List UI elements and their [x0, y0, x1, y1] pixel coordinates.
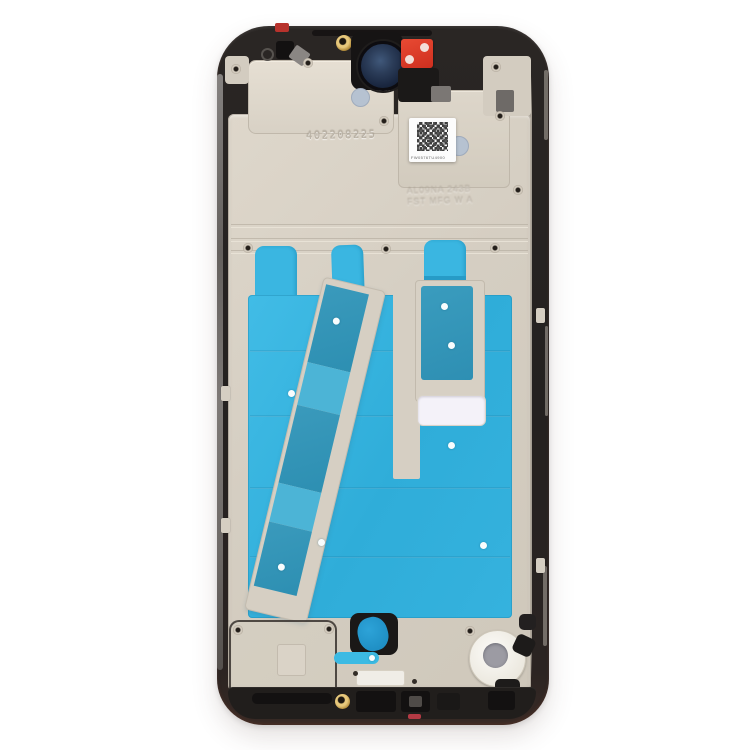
bottom-black-structure: [350, 613, 398, 655]
screw-hole: [465, 626, 475, 636]
cyan-adhesive-strip: [334, 652, 379, 664]
engraved-serial: 402208225: [306, 128, 416, 142]
red-bottom-marker: [408, 714, 421, 719]
screw-hole: [381, 244, 391, 254]
adhesive-hole-dot: [448, 442, 455, 449]
screw-dot: [412, 679, 417, 684]
adhesive-hole-dot: [441, 303, 448, 310]
screw-hole: [513, 185, 523, 195]
frame-left-rim: [217, 74, 223, 670]
adhesive-tab-left: [255, 246, 297, 298]
sticker-dot: [405, 55, 414, 64]
edge-tab: [536, 558, 545, 573]
red-top-marker: [275, 23, 289, 32]
qr-caption: FW0576TU4900: [411, 155, 454, 160]
cutout-inner: [409, 696, 422, 707]
component-cutout: [437, 693, 460, 710]
edge-tab: [221, 386, 230, 401]
gold-screw-bottom: [335, 694, 350, 709]
red-pull-sticker: [401, 39, 433, 68]
stamped-marking: AL09NA 243B FST MFG W A: [407, 182, 520, 208]
qr-code: [417, 122, 448, 151]
bottom-plateau: [277, 644, 306, 676]
microphone-hole: [261, 48, 274, 61]
speaker-cutout: [488, 691, 515, 710]
edge-tab: [221, 518, 230, 533]
screw-dot: [353, 671, 358, 676]
screw-hole: [324, 624, 334, 634]
screw-hole: [243, 243, 253, 253]
qr-label: FW0576TU4900: [409, 118, 456, 162]
screw-hole: [491, 62, 501, 72]
screw-hole: [303, 58, 313, 68]
speaker-mesh-window: [356, 670, 405, 686]
charging-port-cutout: [356, 691, 396, 712]
screw-hole: [379, 116, 389, 126]
adhesive-pad-circle: [351, 88, 370, 107]
white-window-cutout: [417, 395, 486, 426]
metal-clip: [431, 86, 451, 102]
diagonal-adhesive-segment: [254, 522, 312, 596]
gold-screw-top: [336, 35, 352, 51]
adhesive-hole-dot: [318, 539, 325, 546]
metal-clip: [496, 90, 514, 112]
black-clip: [519, 614, 536, 630]
bottom-frame-bar: [228, 687, 536, 719]
adhesive-hole-dot: [448, 342, 455, 349]
embossed-line: [231, 238, 528, 242]
screw-hole: [490, 243, 500, 253]
adhesive-blob: [354, 614, 392, 655]
frame-right-glint: [545, 326, 548, 416]
screw-hole: [495, 111, 505, 121]
edge-tab: [536, 308, 545, 323]
screw-hole: [233, 625, 243, 635]
component-cutout: [401, 691, 430, 712]
vibration-motor-core: [483, 643, 508, 668]
adhesive-hole-dot: [369, 655, 375, 661]
adhesive-hole-dot: [288, 390, 295, 397]
phone-frame: FW0576TU4900 402208225 AL09NA 243B FST M…: [217, 26, 549, 725]
sticker-dot: [420, 43, 429, 52]
embossed-line: [231, 224, 528, 228]
frame-right-glint: [543, 566, 547, 646]
frame-right-glint: [544, 70, 548, 140]
bottom-slot: [252, 693, 332, 704]
right-bracket-adhesive: [421, 286, 473, 380]
product-photo: FW0576TU4900 402208225 AL09NA 243B FST M…: [0, 0, 750, 750]
screw-hole: [231, 64, 241, 74]
adhesive-hole-dot: [480, 542, 487, 549]
